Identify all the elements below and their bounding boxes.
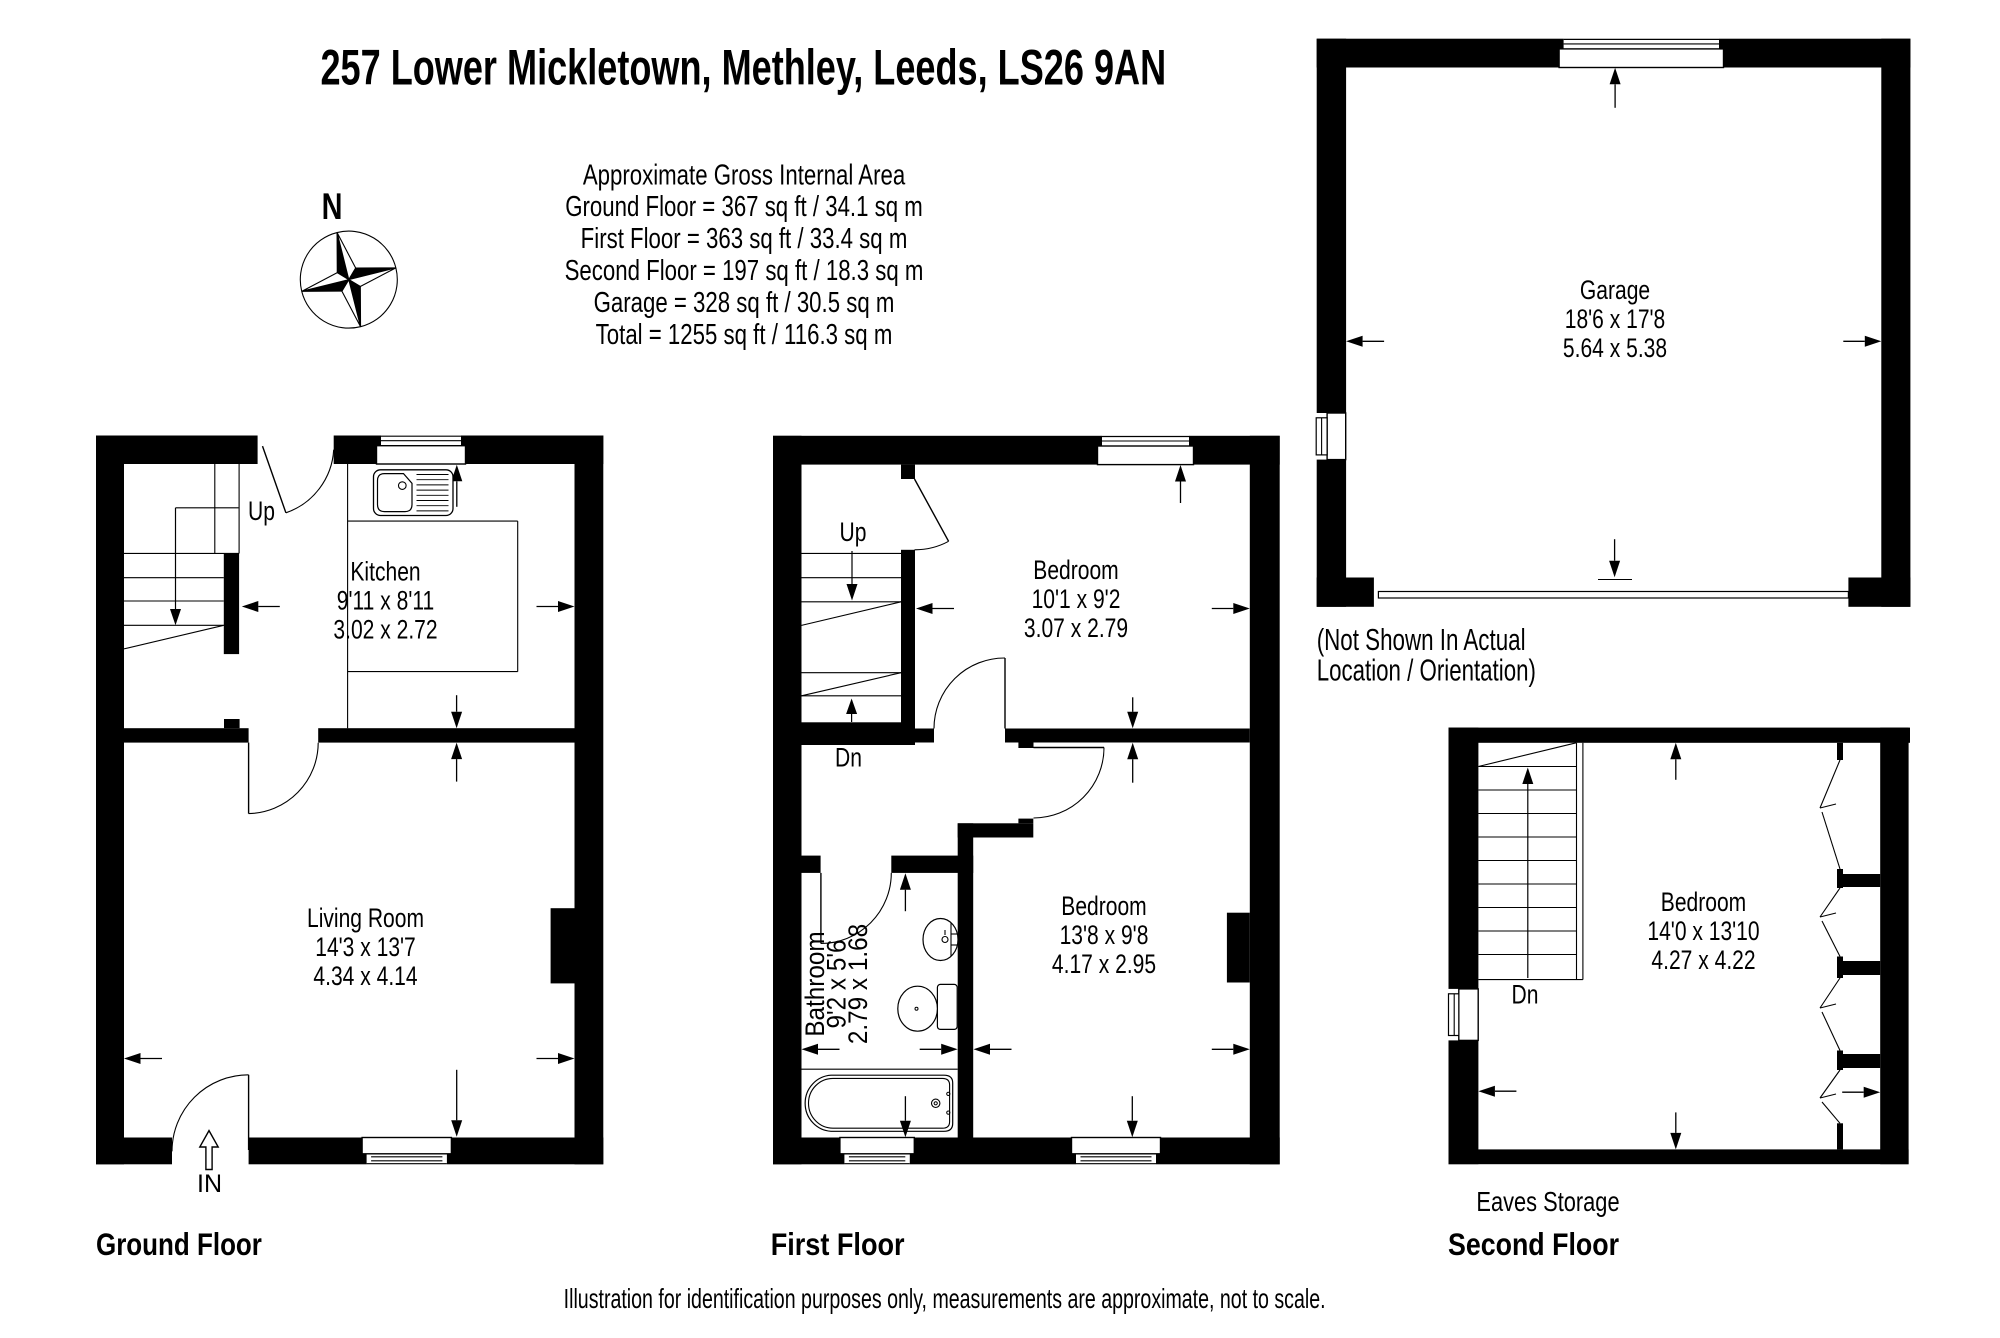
svg-text:Dn: Dn: [835, 743, 862, 773]
svg-text:10'1 x 9'2: 10'1 x 9'2: [1032, 585, 1121, 615]
svg-text:Ground Floor: Ground Floor: [96, 1228, 262, 1263]
svg-text:13'8 x 9'8: 13'8 x 9'8: [1060, 921, 1149, 951]
svg-text:4.17 x 2.95: 4.17 x 2.95: [1052, 950, 1156, 980]
svg-text:IN: IN: [197, 1170, 222, 1198]
svg-text:N: N: [322, 187, 343, 228]
svg-text:4.27 x 4.22: 4.27 x 4.22: [1651, 946, 1755, 976]
svg-text:4.34 x 4.14: 4.34 x 4.14: [313, 962, 417, 992]
svg-text:257 Lower Mickletown, Methley,: 257 Lower Mickletown, Methley, Leeds, LS…: [320, 41, 1166, 96]
svg-text:Up: Up: [248, 497, 275, 527]
svg-text:2.79 x 1.68: 2.79 x 1.68: [844, 924, 873, 1044]
svg-text:14'0 x 13'10: 14'0 x 13'10: [1647, 917, 1759, 947]
svg-text:First Floor: First Floor: [771, 1227, 905, 1262]
svg-text:Bedroom: Bedroom: [1033, 556, 1118, 586]
svg-text:Ground Floor = 367 sq ft / 34.: Ground Floor = 367 sq ft / 34.1 sq m: [565, 192, 923, 223]
svg-text:3.02 x 2.72: 3.02 x 2.72: [333, 615, 437, 645]
svg-text:Garage = 328 sq ft / 30.5 sq m: Garage = 328 sq ft / 30.5 sq m: [594, 287, 895, 318]
svg-text:Bedroom: Bedroom: [1661, 888, 1746, 918]
svg-text:First Floor = 363 sq ft / 33.4: First Floor = 363 sq ft / 33.4 sq m: [581, 224, 908, 255]
svg-text:Location / Orientation): Location / Orientation): [1317, 653, 1536, 687]
svg-text:9'11 x 8'11: 9'11 x 8'11: [337, 586, 434, 616]
svg-text:Illustration for identificatio: Illustration for identification purposes…: [564, 1284, 1326, 1315]
svg-text:Total = 1255 sq ft / 116.3 sq: Total = 1255 sq ft / 116.3 sq m: [596, 319, 893, 350]
svg-text:3.07 x 2.79: 3.07 x 2.79: [1024, 614, 1128, 644]
svg-text:Garage: Garage: [1580, 276, 1650, 306]
svg-text:5.64 x 5.38: 5.64 x 5.38: [1563, 334, 1667, 364]
svg-text:Eaves Storage: Eaves Storage: [1476, 1186, 1619, 1217]
svg-text:Up: Up: [840, 518, 867, 548]
svg-text:Dn: Dn: [1512, 980, 1539, 1010]
svg-text:(Not Shown In Actual: (Not Shown In Actual: [1317, 622, 1526, 656]
svg-text:Approximate Gross Internal Are: Approximate Gross Internal Area: [583, 160, 906, 191]
svg-text:Kitchen: Kitchen: [350, 557, 420, 587]
svg-text:14'3 x 13'7: 14'3 x 13'7: [315, 933, 416, 963]
svg-text:Bedroom: Bedroom: [1061, 892, 1146, 922]
svg-text:18'6 x 17'8: 18'6 x 17'8: [1565, 305, 1666, 335]
svg-text:Second Floor: Second Floor: [1448, 1228, 1619, 1262]
svg-text:Living Room: Living Room: [307, 904, 424, 934]
svg-text:Second Floor = 197 sq ft / 18.: Second Floor = 197 sq ft / 18.3 sq m: [565, 255, 924, 286]
